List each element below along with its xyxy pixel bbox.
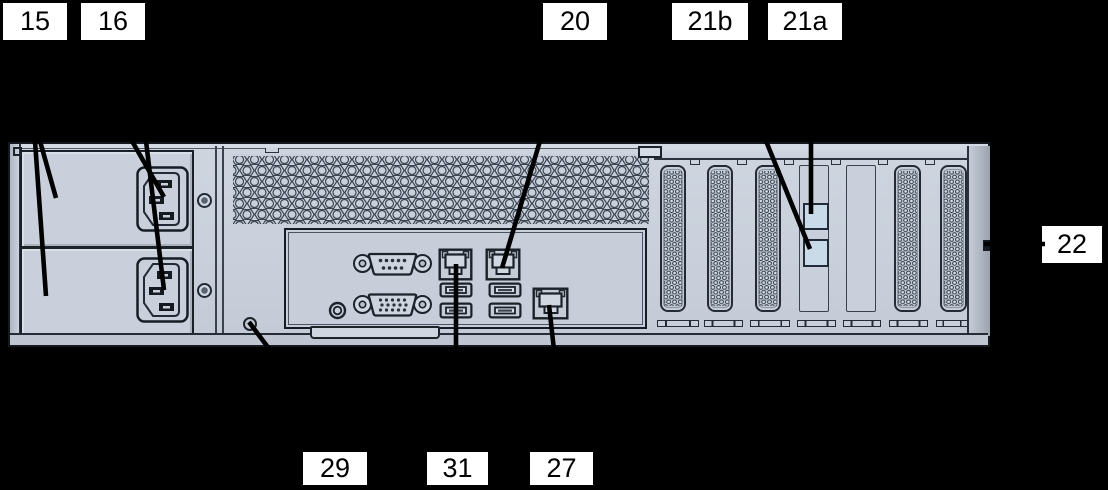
usb-port-2 [490,284,521,297]
pci-slot-2-cover [707,165,733,312]
usb-port-3 [441,304,472,318]
callout-text: 21a [782,8,827,35]
chassis-seam [222,146,224,336]
callout-text: 31 [442,455,472,482]
callout-text: 22 [1057,231,1087,258]
ethernet-port-3 [534,289,568,319]
edge-notch [983,240,990,251]
slot-tab [925,160,935,165]
slot-bracket [750,320,790,327]
callout-label-21a: 21a [768,3,842,40]
chassis-right-seam [967,146,969,336]
slot-bracket [704,320,743,327]
slot-bracket [657,320,699,327]
locator-hole [243,317,257,331]
figure-canvas: 15 16 20 21b 21a 22 29 31 27 [0,0,1108,490]
callout-label-27: 27 [530,452,593,485]
serial-number-pullout-tab [310,326,440,339]
chassis-step [638,146,662,158]
callout-label-16: 16 [81,3,145,40]
callout-label-31: 31 [427,452,488,485]
chassis-seam [215,146,217,336]
slot-bracket [936,320,968,327]
screw-icon [197,283,212,298]
callout-label-29: 29 [303,452,367,485]
ac-power-connector-0 [136,166,189,232]
pci-slot-6-cover [894,165,921,312]
server-rear-panel [8,142,990,347]
callout-text: 16 [98,8,128,35]
port-21a [803,203,829,230]
slot-tab [878,160,888,165]
ethernet-port-2 [487,250,520,280]
pinhole-button [330,303,345,318]
slot-bracket [797,320,836,327]
io-panel [284,228,647,329]
pci-slot-1-cover [660,165,686,312]
ethernet-port-1 [440,250,472,280]
callout-text: 15 [20,8,50,35]
chassis-bottom-rail [10,333,988,345]
pci-slot-7-cover [940,165,967,312]
callout-text: 21b [687,8,732,35]
pci-slot-5-blank [846,165,876,312]
chassis-tab [265,148,279,153]
callout-text: 27 [546,455,576,482]
slot-tab [737,160,747,165]
slot-bracket [889,320,928,327]
pci-slot-3-cover [755,165,781,312]
pci-section-top-lip [654,146,990,160]
port-21b [803,239,829,267]
callout-text: 20 [560,8,590,35]
screw-icon [197,193,212,208]
slot-tab [831,160,841,165]
ac-power-connector-1 [136,257,189,323]
slot-tab [690,160,700,165]
usb-port-1 [441,284,472,297]
slot-tab [784,160,794,165]
callout-label-20: 20 [543,3,607,40]
slot-bracket [843,320,881,327]
serial-port [354,254,431,275]
usb-port-4 [490,304,521,318]
callout-text: 29 [320,455,350,482]
callout-label-22: 22 [1042,226,1102,263]
io-ports [286,230,644,326]
power-supply-bay [20,150,194,338]
callout-label-21b: 21b [672,3,748,40]
vent-grille [232,154,650,225]
callout-label-15: 15 [3,3,67,40]
vga-port [354,295,431,316]
